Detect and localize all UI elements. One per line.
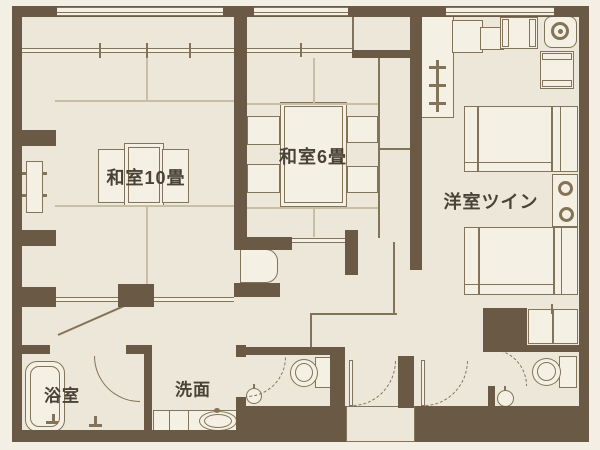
bed-fold-line [465,162,551,163]
wall-segment [483,345,579,352]
tap-icon [504,386,506,391]
wall-segment [410,6,422,270]
armchair-arm [502,19,509,47]
wall-segment [12,430,244,442]
round-table-center [558,29,563,34]
wall-segment [398,356,414,408]
floor-chair [347,116,378,143]
wall-segment [488,386,495,406]
wall-segment [234,283,280,297]
wall-segment [20,230,56,246]
tatami-line [55,205,234,207]
bed-fold-line [465,284,553,285]
sliding-door [154,297,234,302]
room-label-washroom: 洗面 [175,376,211,401]
chest-handle [22,172,26,175]
shower-mixer-icon [89,424,102,427]
plan-line [310,313,397,315]
toilet-tank-icon [559,356,577,388]
headboard [554,227,578,295]
luggage-rack-icon [429,84,446,87]
wall-segment [20,130,56,146]
washbasin-inner-line [204,414,232,428]
plan-line [99,43,101,58]
plan-line [146,43,148,58]
plan-line [551,304,553,314]
floor-plan: 和室10畳 和室6畳 洋室ツイン 浴室 洗面 [0,0,600,450]
lamp-icon [559,207,574,222]
plan-line [379,148,410,150]
wall-segment [483,308,527,348]
floor-chair [347,166,378,193]
armchair-arm [529,19,536,47]
desk [452,20,483,53]
tatami-line [313,58,315,103]
tatami-line [247,103,378,105]
plan-line [310,313,312,349]
wall-segment [126,345,152,354]
entrance-step [346,406,415,442]
window [57,7,223,16]
wall-segment [12,287,56,307]
plan-line [393,242,395,314]
wall-segment [12,345,50,354]
wall-segment [345,230,358,275]
plan-line [189,43,191,58]
wall-segment [236,397,246,406]
room-label-twin: 洋室ツイン [444,188,539,214]
floor-chair [247,164,280,193]
hand-basin-icon [497,390,514,407]
plan-line [352,15,354,50]
headboard [552,106,578,172]
window [254,7,348,16]
wall-segment [579,6,589,442]
wall-segment [330,347,345,406]
wall-segment [352,50,422,58]
tatami-line [146,53,148,100]
toilet-bowl-inner [295,363,313,382]
chest-handle [22,194,26,197]
sliding-door [22,48,234,53]
tap-icon [214,408,220,413]
sliding-door [292,238,345,243]
wall-segment [12,6,22,442]
wall-segment [234,6,247,250]
wall-segment [234,237,292,250]
tatami-line [55,100,234,102]
wall-segment [144,352,152,442]
wall-segment [118,284,154,307]
room-label-washitsu6: 和室6畳 [279,143,347,169]
armchair-arm [542,53,572,60]
toilet-bowl-inner [537,362,556,381]
wall-segment [236,406,346,442]
chest-handle [43,194,47,197]
room-label-washitsu10: 和室10畳 [106,164,185,190]
tatami-line [313,207,315,237]
floor-chair [247,116,280,145]
luggage-rack-icon [429,66,446,69]
headboard-line [560,107,561,171]
plan-line [300,43,302,57]
counter-divider-line [169,411,170,431]
chest [26,161,43,213]
lamp-icon [558,181,573,196]
headboard-line [561,228,562,294]
wall-segment [236,347,344,355]
bath-faucet-icon [52,414,55,423]
chest-handle [43,172,47,175]
room-label-bath: 浴室 [44,382,80,407]
luggage-rack-icon [429,102,446,105]
counter-divider-line [188,411,189,431]
wall-segment [415,406,579,442]
armchair-arm [542,80,572,87]
window [446,7,554,16]
closet-divider-line [552,309,554,344]
bench [240,249,278,283]
